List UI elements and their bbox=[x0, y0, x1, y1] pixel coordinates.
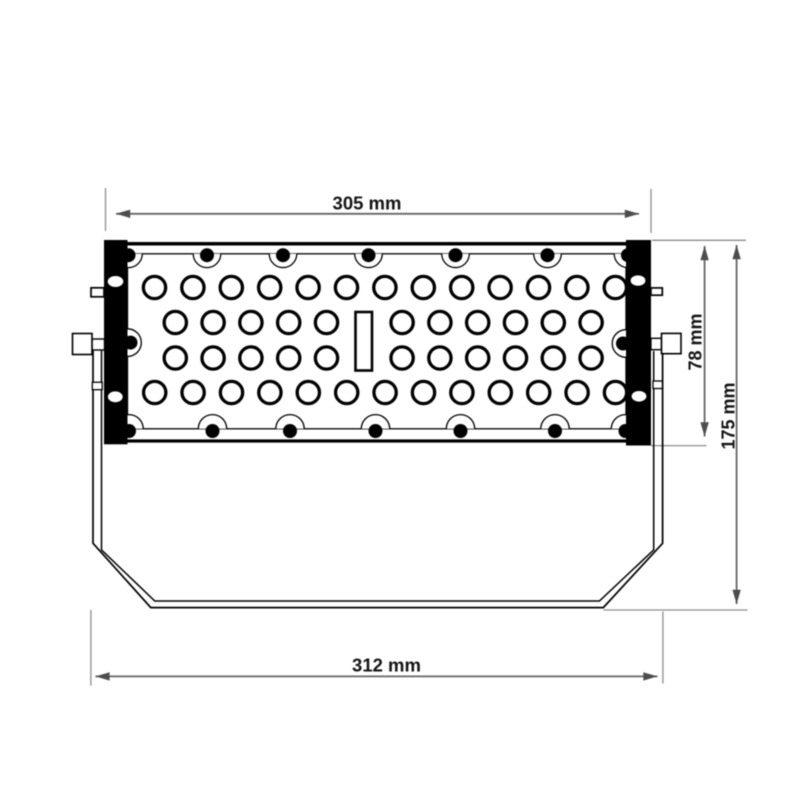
svg-text:78 mm: 78 mm bbox=[686, 313, 706, 370]
svg-text:175 mm: 175 mm bbox=[719, 382, 739, 449]
svg-text:312 mm: 312 mm bbox=[352, 655, 421, 676]
svg-text:305 mm: 305 mm bbox=[333, 193, 402, 214]
